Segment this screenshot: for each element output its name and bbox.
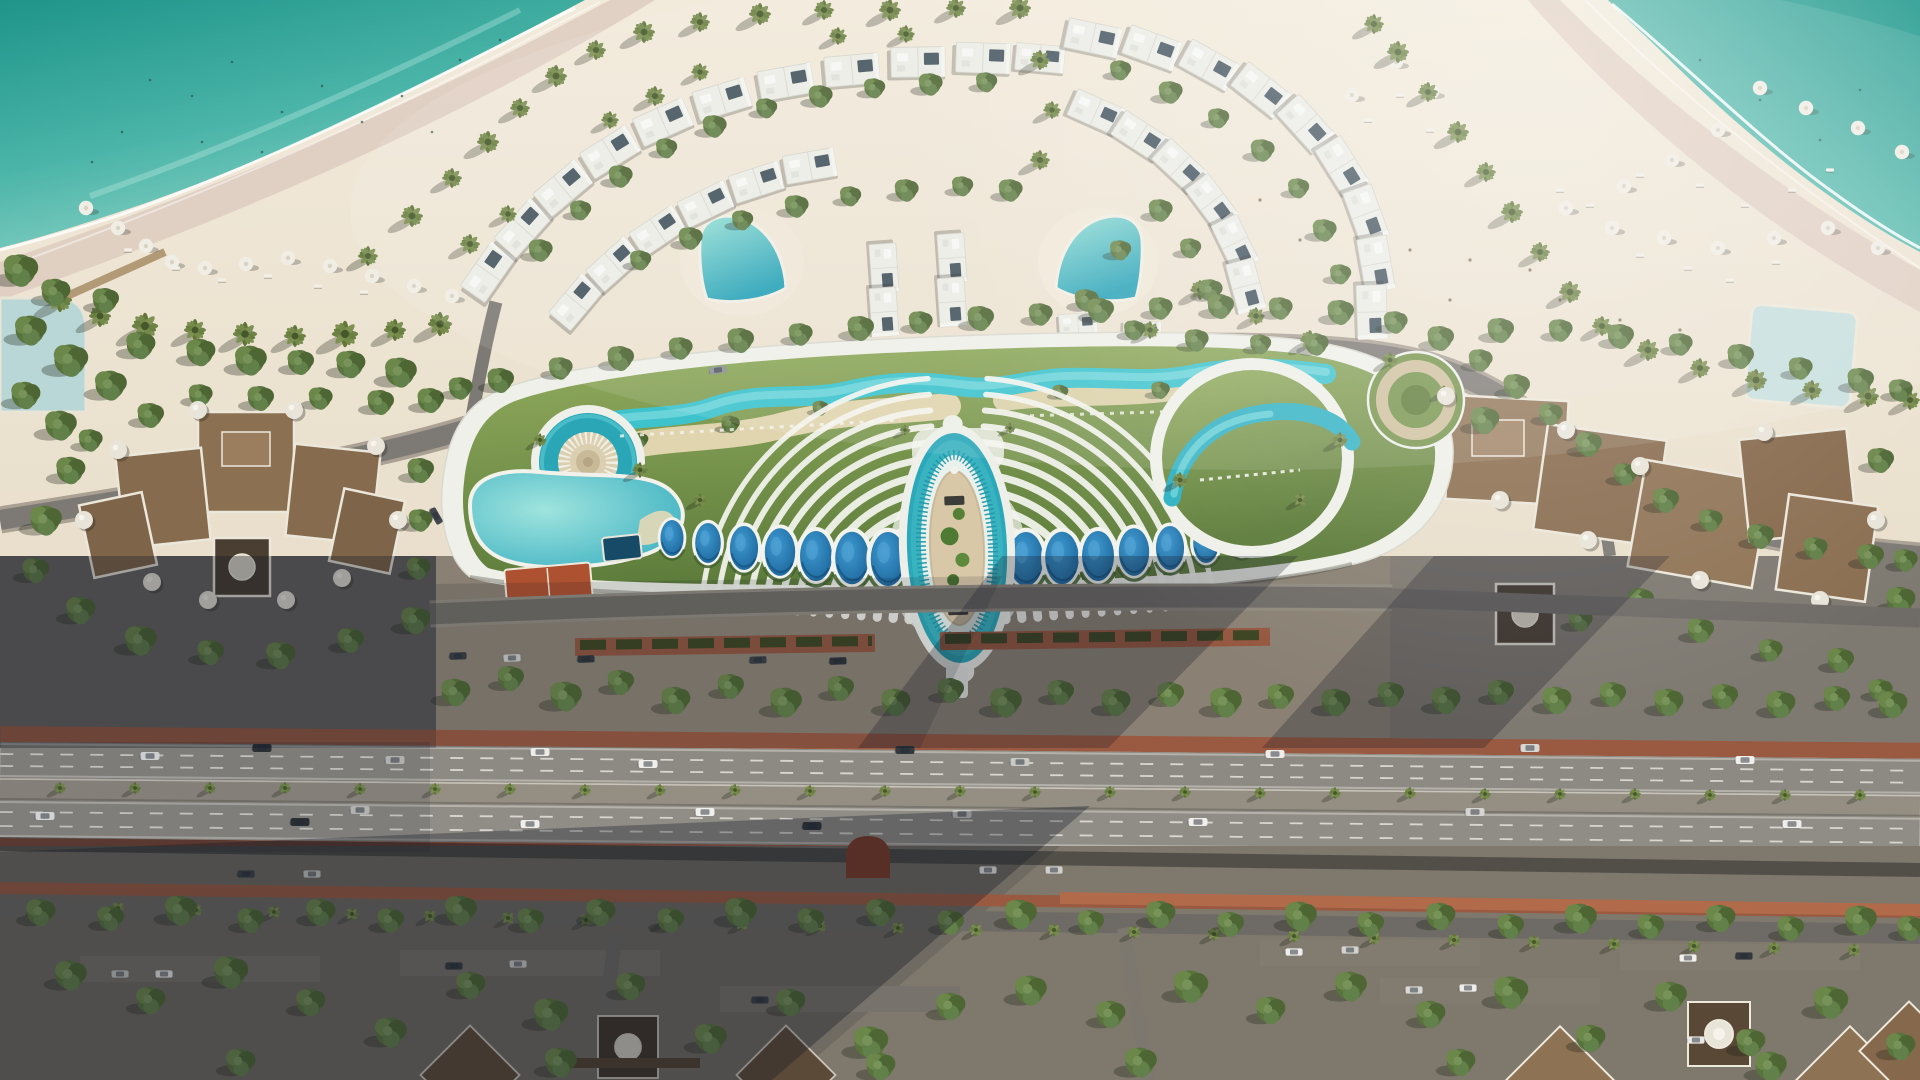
oval-pool: [796, 527, 836, 586]
beach-lounger: [360, 290, 368, 294]
car: [638, 760, 658, 768]
swimmer-speck: [321, 85, 324, 88]
swimmer-speck: [281, 111, 284, 114]
swimmer-speck: [121, 131, 124, 134]
parked-car: [1735, 952, 1753, 959]
parked-car: [1285, 948, 1303, 955]
car: [1735, 756, 1755, 764]
parked-car: [1341, 946, 1359, 953]
highway-west-shade: [0, 742, 430, 852]
parked-car: [1045, 866, 1063, 873]
scene-canvas: [0, 0, 1920, 1080]
beach-lounger: [314, 284, 322, 288]
parked-car: [1679, 954, 1697, 961]
swimmer-speck: [459, 59, 462, 62]
car: [1265, 750, 1285, 758]
beach-lounger: [172, 266, 180, 270]
parked-car: [1405, 986, 1423, 993]
aerial-resort-render: [0, 0, 1920, 1080]
plunge-pool: [602, 534, 642, 562]
car: [1782, 820, 1802, 828]
swimmer-speck: [401, 95, 404, 98]
lagoon-pool: [470, 471, 683, 567]
plaza-shadow: [0, 556, 436, 748]
oval-pool: [726, 522, 761, 574]
car: [1465, 808, 1485, 816]
west-roof-inset: [222, 432, 270, 466]
car: [1188, 818, 1208, 826]
swimmer-speck: [231, 61, 234, 64]
beach-lounger: [218, 278, 226, 282]
swimmer-speck: [191, 95, 194, 98]
car: [1520, 744, 1540, 752]
swimmer-speck: [361, 121, 364, 124]
car: [695, 808, 715, 816]
parked-car: [1459, 984, 1477, 991]
beach-lounger: [124, 248, 132, 252]
car: [520, 820, 540, 828]
parked-car: [1687, 1036, 1705, 1043]
beach-lounger: [264, 274, 272, 278]
oval-pool: [692, 520, 724, 567]
oval-pool: [761, 524, 799, 580]
car: [530, 748, 550, 756]
swimmer-speck: [499, 39, 502, 42]
swimmer-speck: [261, 151, 264, 154]
oval-pool: [658, 517, 687, 559]
swimmer-speck: [149, 79, 152, 82]
swimmer-speck: [91, 161, 94, 164]
swimmer-speck: [201, 141, 204, 144]
car: [1010, 758, 1030, 766]
